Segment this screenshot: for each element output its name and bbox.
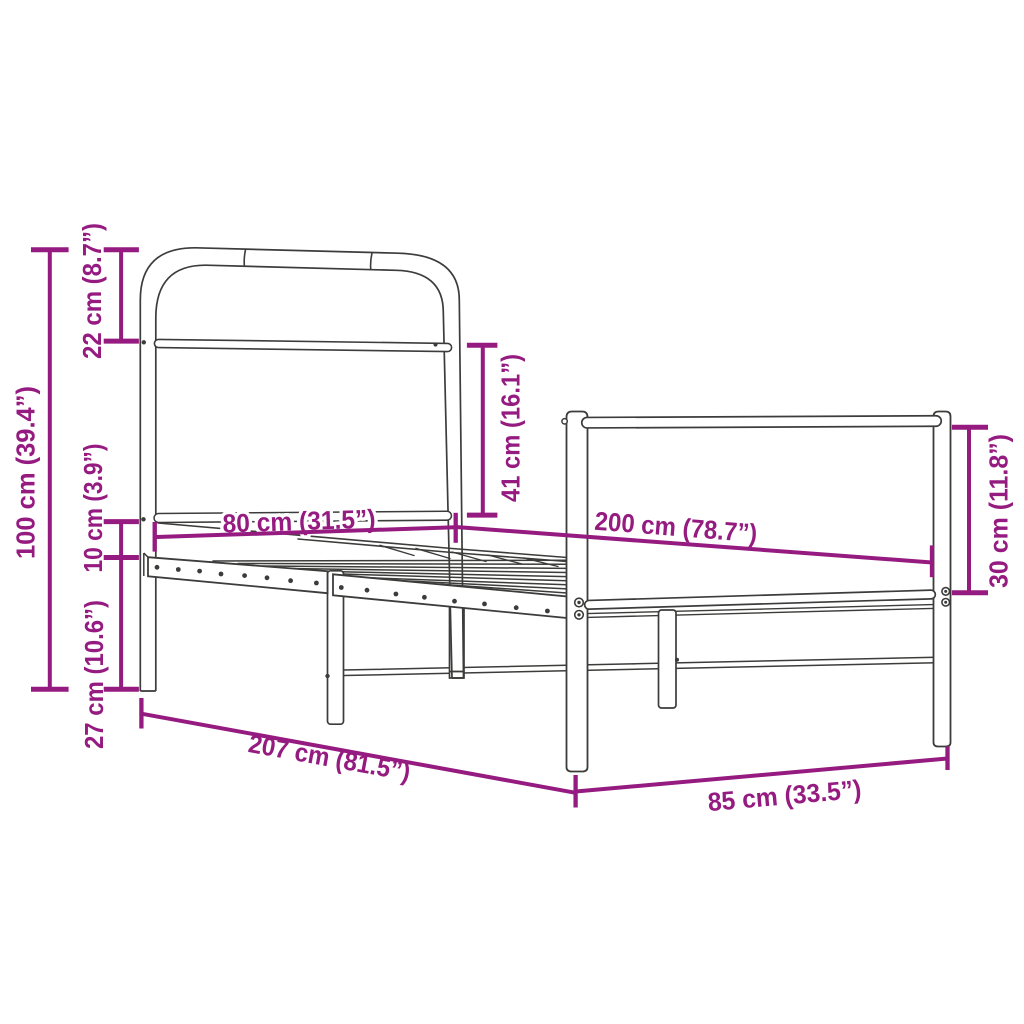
svg-text:27 cm (10.6”): 27 cm (10.6”) <box>79 600 109 749</box>
svg-text:10 cm (3.9”): 10 cm (3.9”) <box>78 444 108 573</box>
svg-text:30 cm (11.8”): 30 cm (11.8”) <box>984 434 1014 588</box>
svg-text:100 cm (39.4”): 100 cm (39.4”) <box>11 386 41 559</box>
svg-text:22 cm (8.7”): 22 cm (8.7”) <box>77 223 107 359</box>
svg-text:41 cm (16.1”): 41 cm (16.1”) <box>496 354 526 502</box>
